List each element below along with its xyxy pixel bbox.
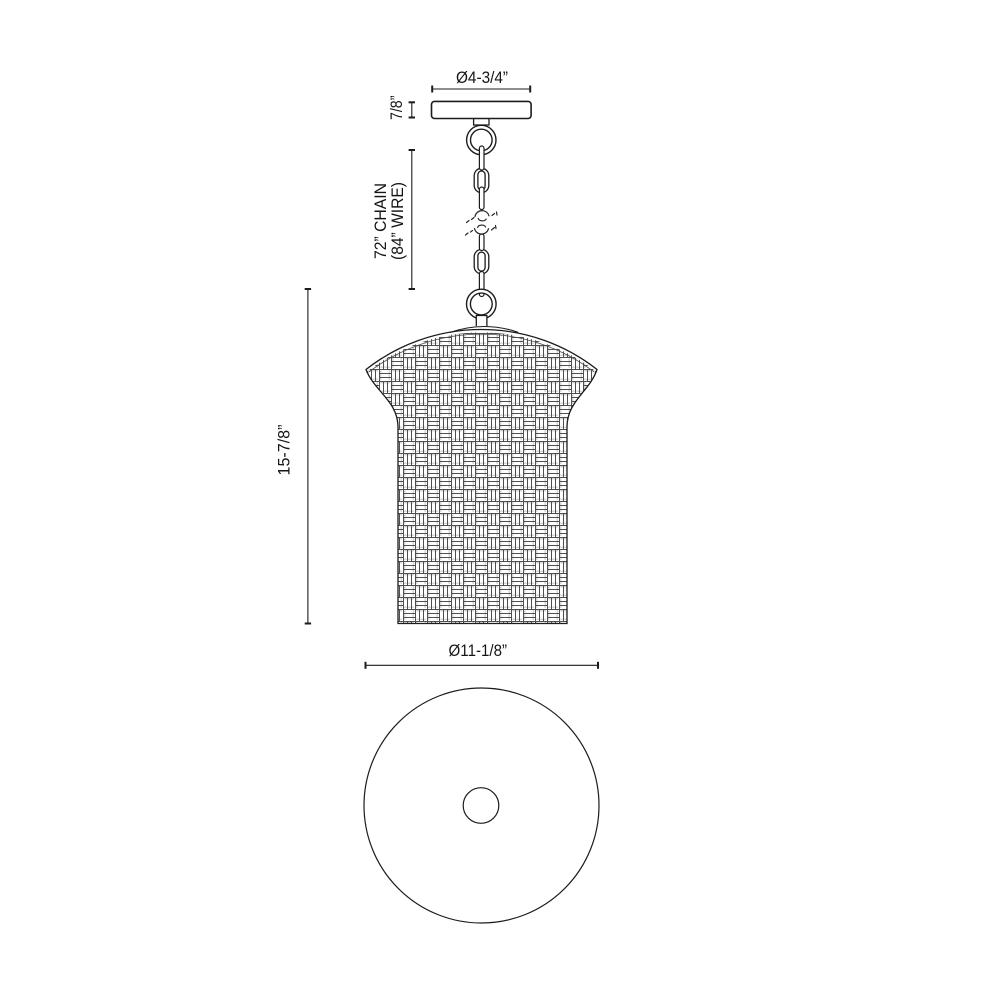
svg-text:7/8”: 7/8” <box>388 96 406 121</box>
svg-text:Ø11-1/8”: Ø11-1/8” <box>449 642 508 660</box>
svg-text:Ø4-3/4”: Ø4-3/4” <box>456 69 508 87</box>
svg-text:(84” WIRE): (84” WIRE) <box>389 182 407 260</box>
svg-text:72” CHAIN: 72” CHAIN <box>372 183 390 259</box>
svg-text:15-7/8”: 15-7/8” <box>276 425 294 476</box>
